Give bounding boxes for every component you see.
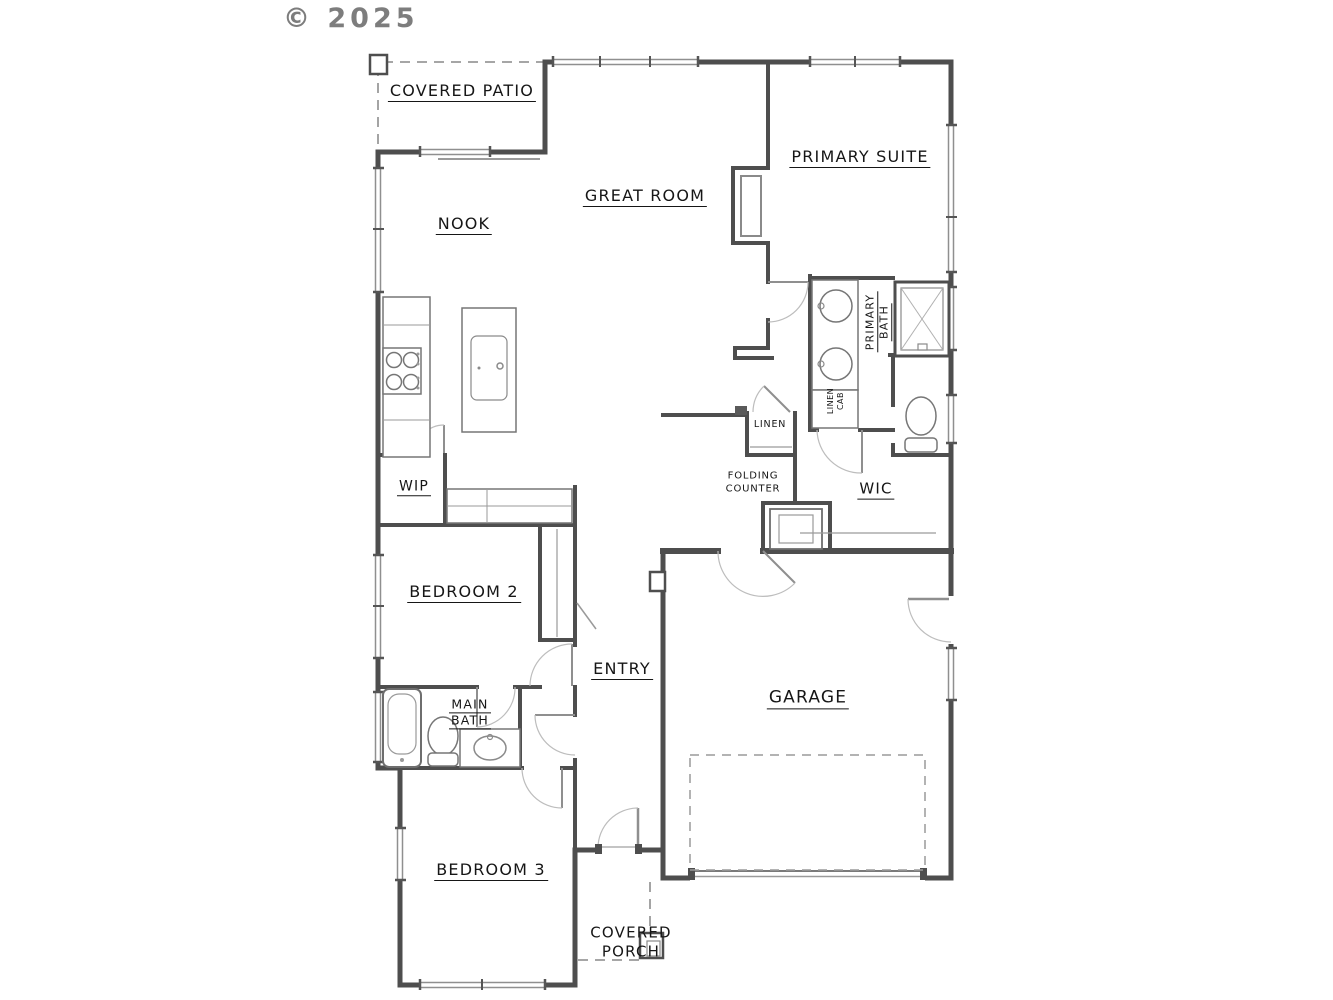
room-label-great-room: GREAT ROOM (583, 186, 707, 206)
patio-post (370, 55, 387, 74)
room-label-bedroom3: BEDROOM 3 (434, 860, 548, 880)
label-linen: LINEN (753, 419, 787, 431)
range-cooktop (383, 348, 421, 394)
label-linen-cab: LINEN CAB (826, 387, 846, 415)
toilet (905, 397, 937, 452)
room-label-wic: WIC (857, 480, 894, 499)
room-label-primary-bath: PRIMARY BATH (863, 292, 891, 353)
room-label-covered-porch: COVERED PORCH (589, 923, 673, 961)
floor-plan-drawing (0, 0, 1333, 1000)
vanity-sink (460, 729, 520, 767)
copyright-watermark: © 2025 (283, 2, 419, 36)
wall-notch (735, 406, 747, 415)
double-vanity-sinks (812, 280, 858, 390)
bathtub (383, 689, 421, 767)
shower (895, 282, 949, 356)
room-label-wip: WIP (397, 478, 431, 496)
water-heater (770, 509, 822, 549)
room-label-primary-suite: PRIMARY SUITE (789, 147, 930, 167)
label-folding-counter: FOLDING COUNTER (725, 471, 782, 496)
garage-pilaster (650, 572, 665, 591)
room-label-covered-patio: COVERED PATIO (388, 81, 536, 101)
room-label-garage: GARAGE (767, 687, 849, 708)
fireplace-niche (741, 176, 761, 236)
garage-parking-dashed (690, 755, 925, 870)
covered-patio-outline (378, 62, 545, 150)
room-label-entry: ENTRY (591, 659, 653, 679)
peninsula-counter (447, 489, 572, 523)
room-label-nook: NOOK (436, 214, 492, 234)
floor-plan: © 2025 COVERED PATIO NOOK GREAT ROOM PRI… (0, 0, 1333, 1000)
room-label-bedroom2: BEDROOM 2 (407, 582, 521, 602)
room-label-main-bath: MAIN BATH (449, 696, 491, 727)
kitchen-island (462, 308, 516, 432)
